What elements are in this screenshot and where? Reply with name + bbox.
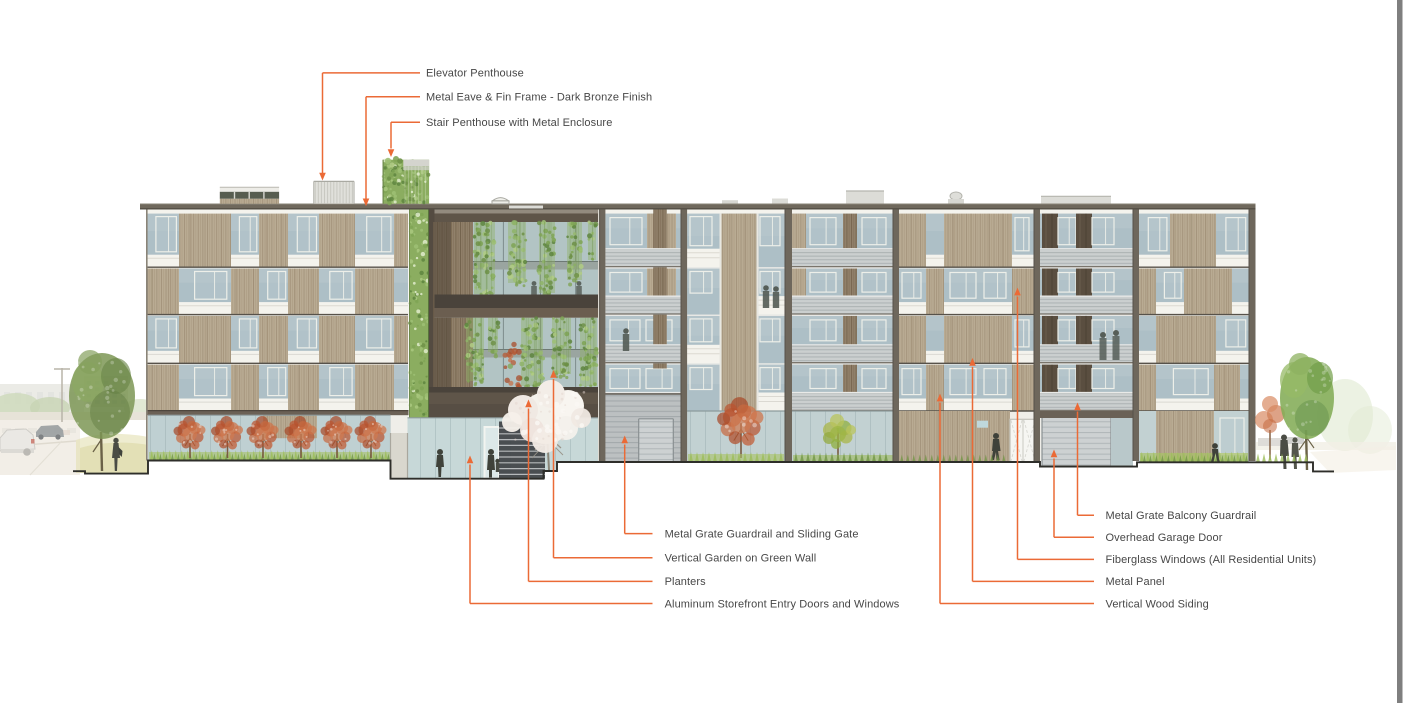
svg-text:Metal Eave & Fin Frame - Dark: Metal Eave & Fin Frame - Dark Bronze Fin… <box>426 92 652 104</box>
svg-text:Metal Panel: Metal Panel <box>1106 576 1165 588</box>
svg-text:Fiberglass Windows (All Reside: Fiberglass Windows (All Residential Unit… <box>1106 554 1317 566</box>
svg-text:Metal Grate Balcony Guardrail: Metal Grate Balcony Guardrail <box>1106 510 1257 522</box>
svg-text:Stair Penthouse with Metal Enc: Stair Penthouse with Metal Enclosure <box>426 117 612 129</box>
svg-text:Vertical Wood Siding: Vertical Wood Siding <box>1106 598 1209 610</box>
svg-text:Planters: Planters <box>665 576 707 588</box>
svg-text:Vertical Garden on Green Wall: Vertical Garden on Green Wall <box>665 553 817 565</box>
svg-text:Metal Grate Guardrail and Slid: Metal Grate Guardrail and Sliding Gate <box>665 528 859 540</box>
svg-text:Elevator Penthouse: Elevator Penthouse <box>426 68 524 80</box>
svg-text:Overhead Garage Door: Overhead Garage Door <box>1106 532 1223 544</box>
svg-text:Aluminum Storefront Entry Door: Aluminum Storefront Entry Doors and Wind… <box>665 598 900 610</box>
